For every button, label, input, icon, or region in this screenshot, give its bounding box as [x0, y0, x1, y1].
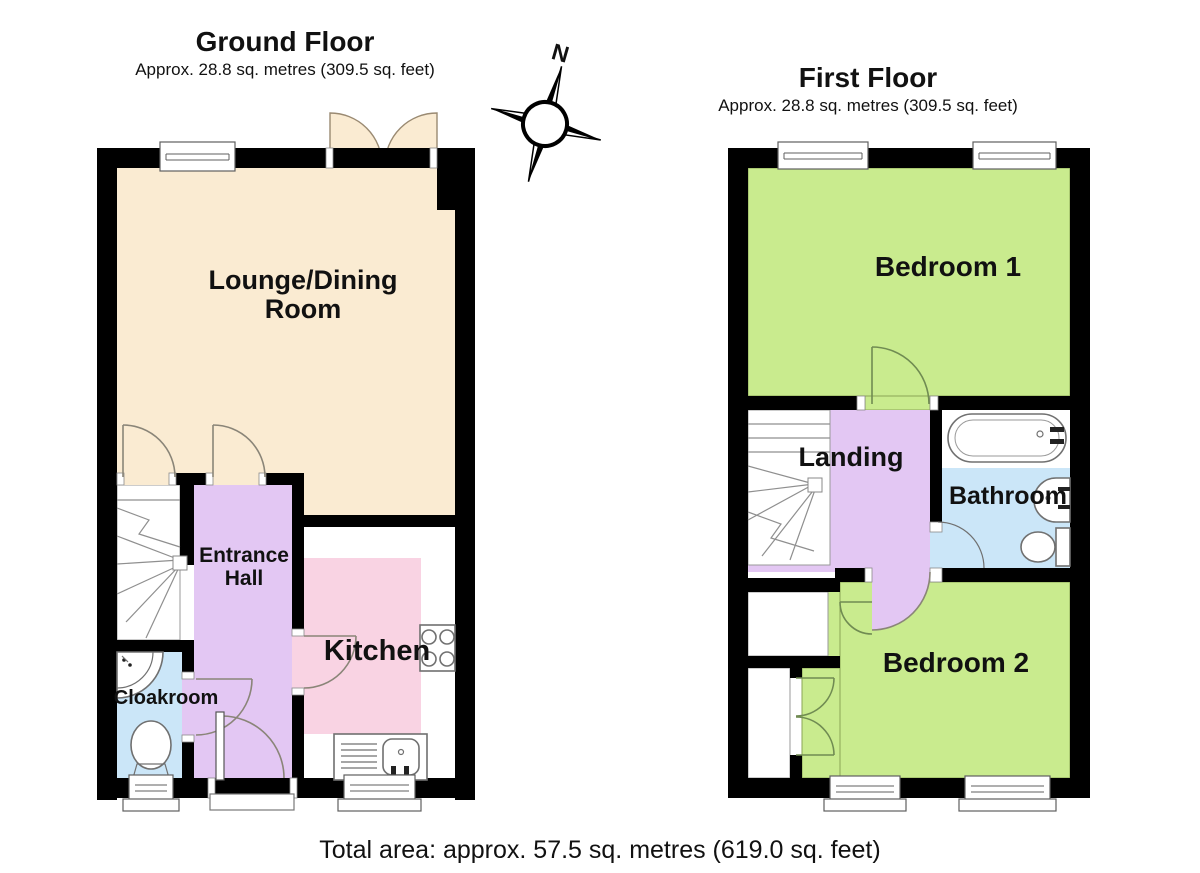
door-jamb [930, 522, 942, 532]
doorway-fill [123, 473, 175, 485]
wall [97, 640, 194, 652]
wall [97, 148, 475, 168]
door-jamb [857, 396, 865, 410]
wall [728, 396, 858, 410]
wall [728, 148, 748, 798]
doorway-fill [213, 473, 265, 485]
wall [1070, 148, 1090, 798]
wall [292, 688, 304, 778]
door-jamb [206, 473, 213, 485]
bathtub-icon [948, 414, 1066, 462]
room-label-kitchen: Kitchen [277, 636, 477, 667]
room-label-bedroom1: Bedroom 1 [828, 252, 1068, 282]
wall [828, 578, 840, 592]
floor-plan-canvas: Ground Floor Approx. 28.8 sq. metres (30… [0, 0, 1200, 873]
closet-floor [748, 668, 790, 778]
compass-hub [518, 97, 572, 151]
wall [455, 148, 475, 800]
door-jamb [292, 688, 304, 695]
door-jamb [430, 148, 437, 168]
wall [728, 656, 840, 668]
wall [790, 755, 802, 778]
total-area-text: Total area: approx. 57.5 sq. metres (619… [0, 836, 1200, 865]
lounge-room [117, 168, 455, 515]
door-jamb [326, 148, 333, 168]
ground-floor-subtitle: Approx. 28.8 sq. metres (309.5 sq. feet) [85, 60, 485, 80]
first-floor-subtitle: Approx. 28.8 sq. metres (309.5 sq. feet) [668, 96, 1068, 116]
compass-rose [475, 51, 618, 198]
ground-floor-title: Ground Floor [85, 26, 485, 58]
room-label-lounge: Lounge/Dining Room [183, 266, 423, 324]
room-label-landing: Landing [771, 443, 931, 472]
front-door-threshold [210, 794, 294, 810]
doorway-fill [930, 532, 942, 568]
first-floor-title: First Floor [668, 62, 1068, 94]
door-jamb [930, 568, 942, 582]
room-label-cloakroom: Cloakroom [96, 688, 236, 710]
wall [790, 668, 802, 678]
wall [292, 515, 475, 527]
room-label-bathroom: Bathroom [928, 483, 1088, 510]
door-jamb [182, 735, 194, 742]
toilet-icon [1021, 528, 1070, 566]
wall [938, 396, 1090, 410]
door-jamb [930, 396, 938, 410]
wall [942, 568, 1090, 582]
floor-plan-drawing [0, 0, 1200, 873]
door-jamb [865, 568, 872, 582]
wall [728, 578, 835, 592]
first-floor-plan [728, 142, 1090, 811]
closet-floor [748, 592, 828, 656]
front-door-leaf [216, 712, 224, 780]
door-jamb [292, 629, 304, 636]
stair-newel [808, 478, 822, 492]
room-label-bedroom2: Bedroom 2 [836, 648, 1076, 678]
kitchen-sink-icon [334, 734, 427, 780]
door-jamb [182, 672, 194, 679]
stair-newel [173, 556, 187, 570]
doorway-fill [865, 396, 930, 410]
room-label-entrance-hall: Entrance Hall [188, 545, 300, 590]
